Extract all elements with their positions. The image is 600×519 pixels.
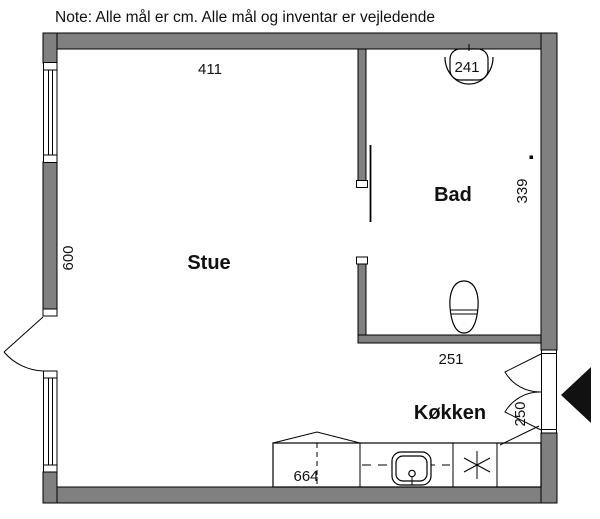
room-label-stue: Stue <box>187 252 230 274</box>
wall-top <box>43 33 557 49</box>
dim-stue-top-width: 411 <box>198 61 222 78</box>
cabinet-front-marks <box>273 432 360 443</box>
door-leaf-upper <box>505 354 541 392</box>
wall-end-cap <box>43 309 57 316</box>
wall-marker-dot <box>530 156 534 160</box>
dim-entry-door-width: 250 <box>512 401 529 426</box>
room-label-kokken: Køkken <box>414 402 486 424</box>
wall-bad-bottom <box>358 335 541 343</box>
floor-plan-canvas: Note: Alle mål er cm. Alle mål og invent… <box>0 0 600 519</box>
dim-bad-bottom-width: 251 <box>438 351 463 368</box>
cabinet-front-mark-right <box>500 426 539 445</box>
wall-bad-left-lower <box>358 264 366 335</box>
door-opening <box>542 350 557 433</box>
wall-left-mid <box>43 162 57 310</box>
kitchen-sink <box>392 452 431 485</box>
floor-plan: Note: Alle mål er cm. Alle mål og invent… <box>0 0 600 519</box>
balcony-door-left <box>4 317 43 371</box>
wall-bad-left-upper <box>358 49 366 181</box>
window-top-left <box>44 63 58 163</box>
wall-right-upper <box>541 33 557 350</box>
wall-bottom <box>43 487 557 503</box>
toilet-bowl <box>450 281 478 333</box>
window-bottom-left <box>44 371 58 472</box>
dim-stue-left-height: 600 <box>60 245 77 270</box>
entrance-arrow-icon <box>561 367 591 423</box>
dim-bad-top-width: 241 <box>454 59 479 76</box>
toilet <box>450 281 478 333</box>
outer-walls <box>43 33 557 503</box>
wall-end-cap <box>357 257 368 264</box>
dim-kitchen-counter: 664 <box>293 468 318 485</box>
wall-right-lower <box>541 433 557 503</box>
door-leaf <box>4 317 43 352</box>
door-swing-arc <box>4 352 43 371</box>
plan-note: Note: Alle mål er cm. Alle mål og invent… <box>55 9 435 26</box>
wall-left-top <box>43 33 57 63</box>
wall-end-cap <box>357 181 368 188</box>
wall-left-bottom <box>43 472 57 503</box>
room-label-bad: Bad <box>434 184 472 206</box>
dim-bad-right-height: 339 <box>514 178 531 203</box>
